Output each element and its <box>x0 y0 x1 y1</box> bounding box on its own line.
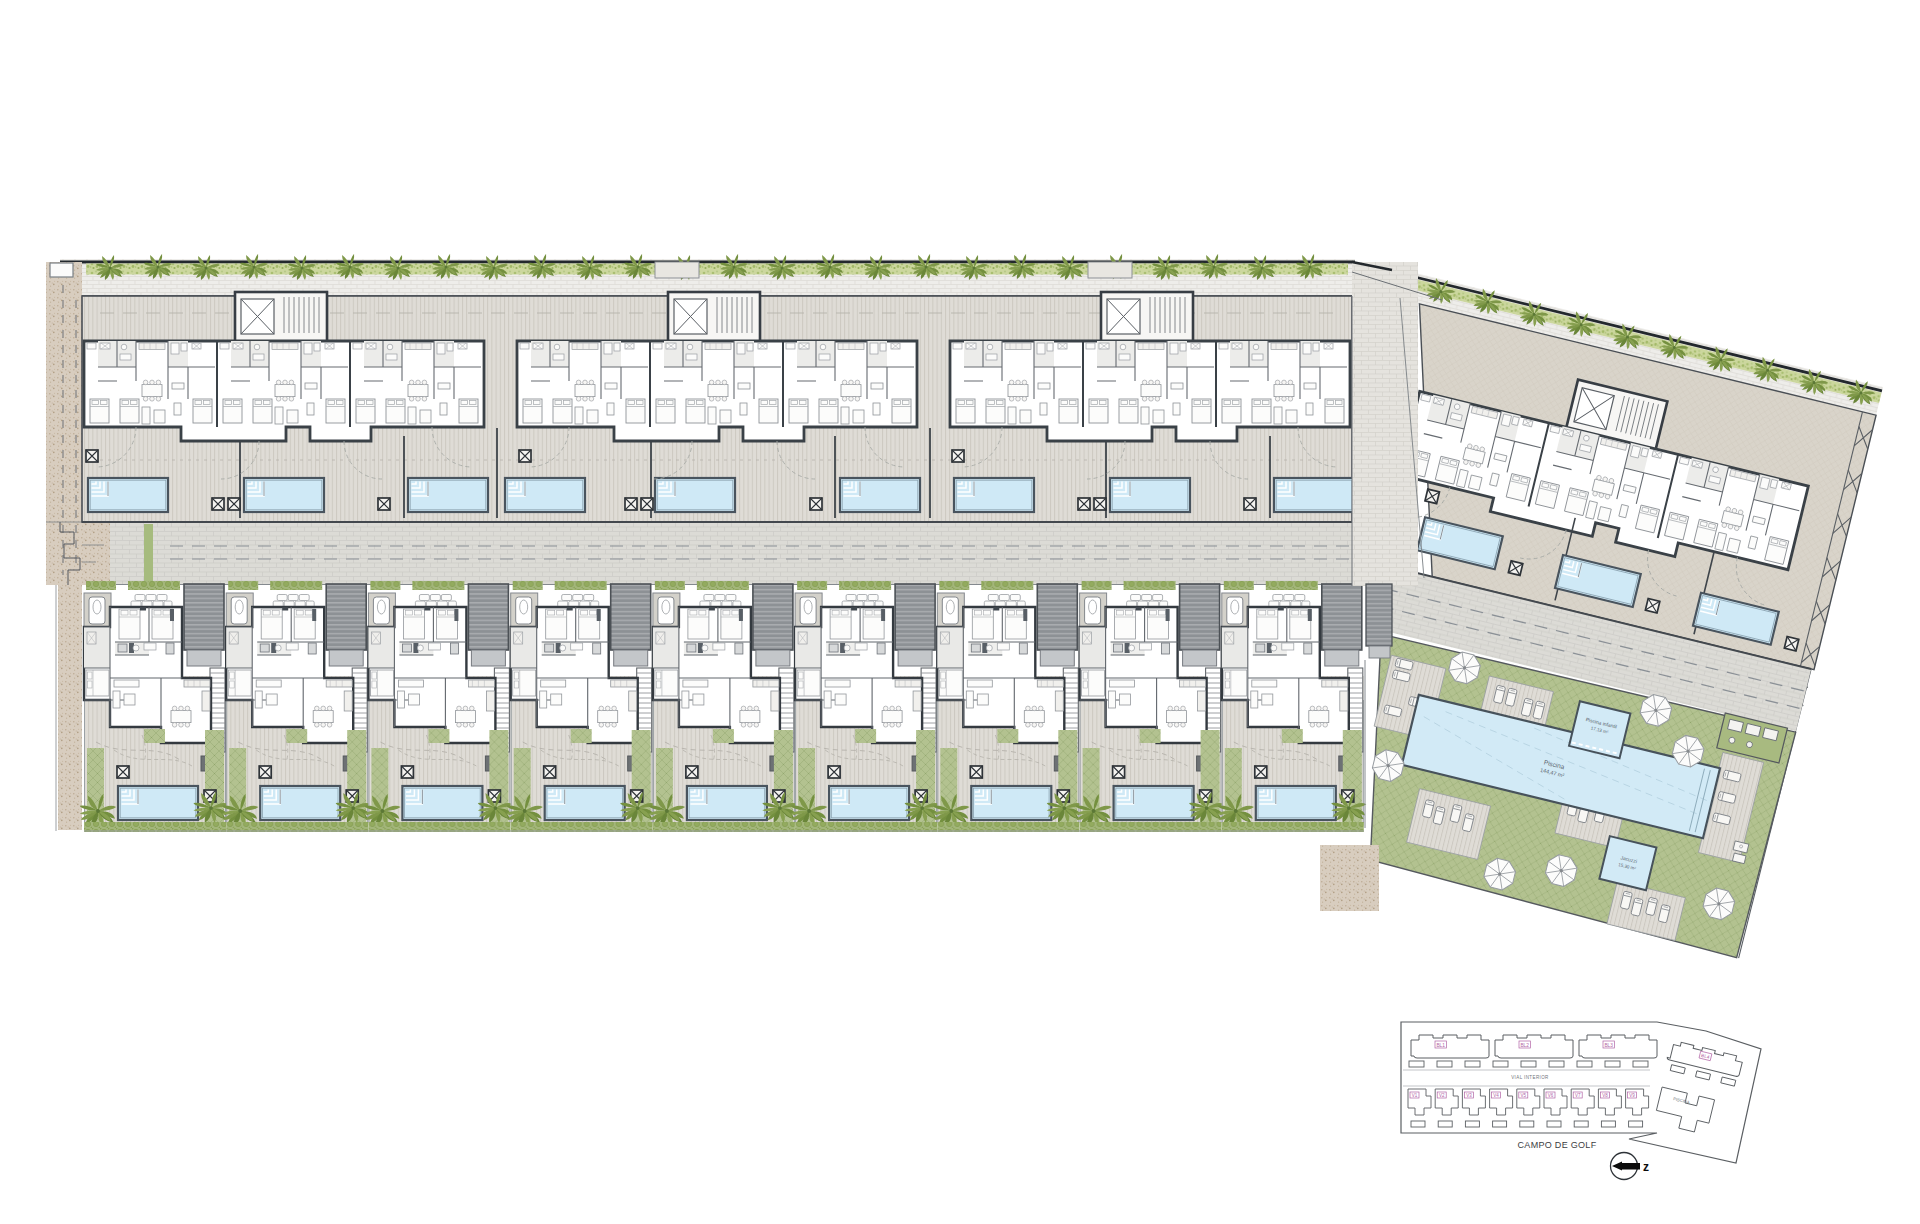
svg-text:V6: V6 <box>1548 1093 1554 1098</box>
svg-text:V3: V3 <box>1466 1093 1472 1098</box>
svg-text:V7: V7 <box>1575 1093 1581 1098</box>
svg-text:V1: V1 <box>1412 1093 1418 1098</box>
svg-text:V2: V2 <box>1439 1093 1445 1098</box>
svg-text:CAMPO DE GOLF: CAMPO DE GOLF <box>1518 1140 1597 1150</box>
svg-text:BL3: BL3 <box>1604 1043 1613 1048</box>
svg-text:z: z <box>1643 1160 1649 1174</box>
svg-text:V4: V4 <box>1493 1093 1499 1098</box>
svg-text:VIAL INTERIOR: VIAL INTERIOR <box>1511 1075 1549 1080</box>
svg-text:V9: V9 <box>1629 1093 1635 1098</box>
svg-text:BL2: BL2 <box>1520 1043 1529 1048</box>
svg-text:V8: V8 <box>1602 1093 1608 1098</box>
svg-text:V5: V5 <box>1521 1093 1527 1098</box>
svg-text:BL1: BL1 <box>1436 1043 1445 1048</box>
